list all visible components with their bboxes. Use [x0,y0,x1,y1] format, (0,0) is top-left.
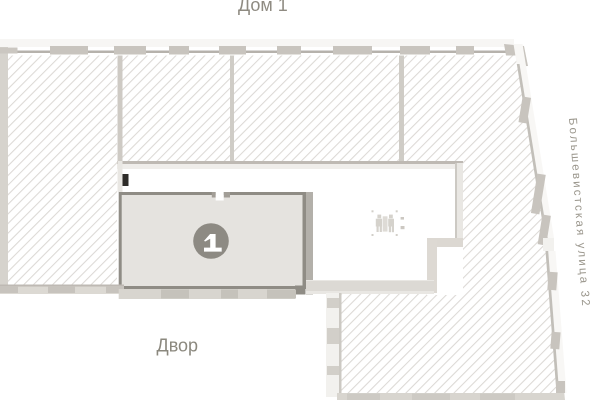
svg-text:Двор: Двор [157,336,199,356]
svg-text:Дом 1: Дом 1 [238,0,288,15]
svg-text:Большевистская улица 32: Большевистская улица 32 [566,117,591,308]
